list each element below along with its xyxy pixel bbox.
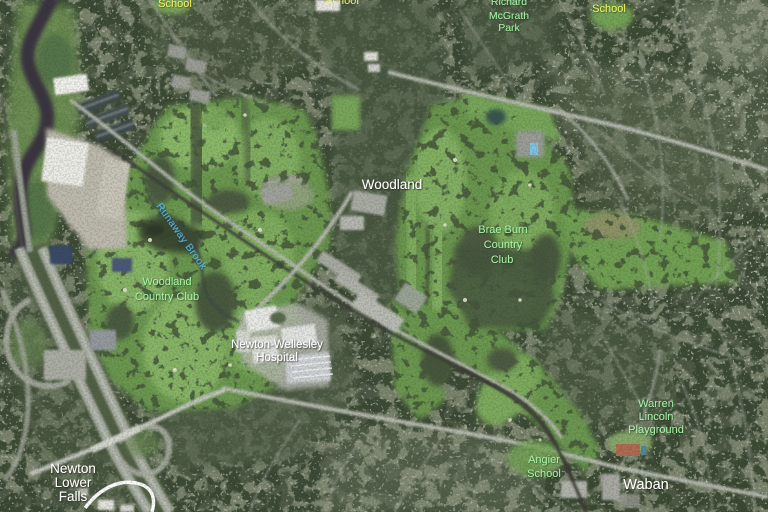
svg-text:Country Club: Country Club (135, 291, 199, 303)
svg-text:Playground: Playground (628, 424, 684, 436)
svg-text:School: School (527, 468, 561, 480)
svg-text:Brae Burn: Brae Burn (478, 224, 528, 236)
svg-text:McGrath: McGrath (489, 10, 529, 22)
svg-text:Club: Club (491, 254, 514, 266)
svg-text:Country: Country (484, 239, 523, 251)
svg-text:Runaway Brook: Runaway Brook (154, 201, 210, 273)
svg-text:Angier: Angier (528, 454, 560, 466)
svg-text:Newton-Wellesley: Newton-Wellesley (231, 339, 323, 351)
svg-text:Woodland: Woodland (362, 177, 423, 192)
svg-text:Warren: Warren (638, 398, 674, 410)
svg-text:Richard: Richard (491, 0, 527, 8)
svg-text:Hospital: Hospital (256, 352, 298, 364)
svg-text:Lower: Lower (55, 475, 92, 490)
svg-text:Waban: Waban (623, 477, 668, 493)
svg-text:School: School (158, 0, 192, 10)
svg-text:School: School (325, 0, 359, 7)
svg-text:Lincoln: Lincoln (639, 411, 674, 423)
svg-text:Falls: Falls (59, 489, 88, 504)
svg-text:Newton: Newton (50, 461, 96, 476)
svg-text:School: School (592, 3, 626, 15)
svg-text:Woodland: Woodland (142, 276, 191, 288)
svg-text:Park: Park (498, 22, 520, 34)
